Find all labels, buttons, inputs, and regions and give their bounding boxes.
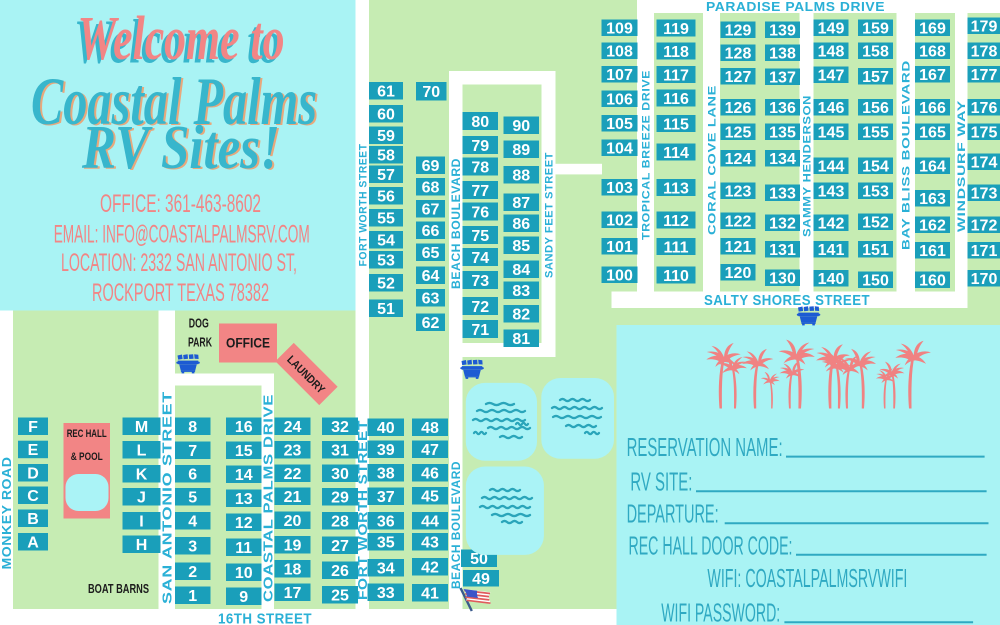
svg-text:108: 108: [606, 44, 633, 61]
svg-text:177: 177: [971, 67, 998, 84]
svg-text:90: 90: [512, 118, 530, 135]
svg-text:25: 25: [331, 588, 349, 605]
svg-text:160: 160: [919, 273, 946, 290]
svg-text:157: 157: [862, 69, 889, 86]
svg-text:49: 49: [472, 571, 490, 588]
svg-text:132: 132: [769, 216, 796, 233]
svg-text:70: 70: [422, 84, 440, 101]
svg-text:115: 115: [663, 116, 689, 133]
svg-text:105: 105: [606, 116, 633, 133]
svg-text:124: 124: [725, 151, 752, 168]
svg-text:ROCKPORT TEXAS 78382: ROCKPORT TEXAS 78382: [92, 279, 269, 307]
svg-text:29: 29: [331, 490, 349, 507]
svg-text:135: 135: [769, 125, 796, 142]
svg-text:149: 149: [818, 21, 845, 38]
svg-text:141: 141: [818, 242, 845, 259]
svg-text:DOG: DOG: [189, 316, 209, 331]
svg-text:42: 42: [421, 560, 439, 577]
svg-text:143: 143: [818, 184, 845, 201]
svg-text:155: 155: [862, 125, 889, 142]
svg-text:31: 31: [331, 443, 349, 460]
svg-text:125: 125: [725, 125, 752, 142]
svg-text:16: 16: [235, 419, 253, 436]
svg-text:109: 109: [606, 21, 633, 38]
svg-text:M: M: [135, 419, 148, 436]
svg-text:112: 112: [663, 213, 689, 230]
svg-text:104: 104: [606, 141, 633, 158]
svg-text:146: 146: [818, 100, 845, 117]
svg-text:62: 62: [422, 315, 440, 332]
svg-text:36: 36: [377, 514, 395, 531]
svg-text:173: 173: [971, 186, 998, 203]
svg-text:CORAL COVE LANE: CORAL COVE LANE: [706, 85, 718, 235]
svg-text:46: 46: [421, 466, 439, 483]
svg-text:176: 176: [971, 100, 998, 117]
svg-text:88: 88: [512, 168, 530, 185]
svg-text:TROPICAL BREEZE DRIVE: TROPICAL BREEZE DRIVE: [640, 70, 652, 240]
svg-text:142: 142: [818, 216, 845, 233]
svg-text:65: 65: [422, 245, 440, 262]
svg-text:64: 64: [422, 268, 440, 285]
svg-text:53: 53: [377, 253, 395, 270]
svg-text:35: 35: [377, 535, 395, 552]
svg-text:55: 55: [377, 211, 395, 228]
svg-text:EMAIL: INFO@COASTALPALMSRV.COM: EMAIL: INFO@COASTALPALMSRV.COM: [54, 221, 310, 249]
svg-text:168: 168: [919, 44, 946, 61]
svg-text:L: L: [137, 443, 147, 460]
svg-text:118: 118: [663, 44, 689, 61]
svg-text:150: 150: [862, 273, 889, 290]
svg-text:129: 129: [725, 23, 752, 40]
svg-text:44: 44: [421, 514, 439, 531]
svg-text:REC HALL: REC HALL: [67, 428, 107, 440]
svg-text:22: 22: [284, 466, 302, 483]
svg-text:138: 138: [769, 46, 796, 63]
svg-text:8: 8: [188, 419, 197, 436]
svg-text:79: 79: [471, 138, 489, 155]
svg-text:F: F: [28, 419, 38, 436]
svg-text:68: 68: [422, 180, 440, 197]
svg-text:133: 133: [769, 186, 796, 203]
svg-text:77: 77: [471, 183, 489, 200]
svg-text:58: 58: [377, 148, 395, 165]
svg-text:171: 171: [971, 243, 998, 260]
svg-text:158: 158: [862, 44, 889, 61]
svg-text:63: 63: [422, 291, 440, 308]
svg-text:163: 163: [919, 191, 946, 208]
svg-text:40: 40: [377, 420, 395, 437]
svg-text:5: 5: [188, 490, 197, 507]
svg-text:10: 10: [235, 565, 253, 582]
svg-text:145: 145: [818, 125, 845, 142]
svg-text:45: 45: [421, 489, 439, 506]
svg-text:C: C: [27, 488, 39, 505]
svg-text:101: 101: [606, 239, 633, 256]
svg-text:SAMMY HENDERSON: SAMMY HENDERSON: [801, 95, 813, 237]
svg-text:74: 74: [471, 250, 489, 267]
svg-text:84: 84: [512, 262, 530, 279]
svg-text:80: 80: [471, 114, 489, 131]
svg-text:126: 126: [725, 100, 752, 117]
svg-text:13: 13: [235, 491, 253, 508]
svg-text:134: 134: [769, 151, 796, 168]
svg-text:REC HALL DOOR CODE:: REC HALL DOOR CODE:: [629, 530, 793, 560]
svg-text:& POOL: & POOL: [71, 451, 103, 463]
svg-text:6: 6: [188, 467, 197, 484]
svg-text:PARK: PARK: [188, 335, 212, 350]
svg-text:178: 178: [971, 44, 998, 61]
svg-text:SALTY SHORES STREET: SALTY SHORES STREET: [704, 292, 870, 309]
svg-text:72: 72: [471, 299, 489, 316]
svg-text:12: 12: [235, 515, 253, 532]
svg-text:137: 137: [769, 70, 796, 87]
svg-text:28: 28: [331, 514, 349, 531]
svg-text:9: 9: [239, 589, 248, 606]
svg-text:E: E: [28, 442, 39, 459]
svg-text:123: 123: [725, 184, 752, 201]
svg-text:66: 66: [422, 223, 440, 240]
svg-text:81: 81: [512, 331, 530, 348]
svg-text:59: 59: [377, 128, 395, 145]
svg-text:174: 174: [971, 155, 998, 172]
svg-text:37: 37: [377, 489, 395, 506]
svg-text:48: 48: [421, 420, 439, 437]
svg-text:LOCATION: 2332 SAN ANTONIO ST,: LOCATION: 2332 SAN ANTONIO ST,: [61, 249, 297, 277]
svg-text:SANDY FEET STREET: SANDY FEET STREET: [543, 152, 555, 278]
svg-text:WIFI PASSWORD:: WIFI PASSWORD:: [661, 598, 780, 625]
svg-text:56: 56: [377, 189, 395, 206]
svg-text:BEACH BOULEVARD: BEACH BOULEVARD: [451, 158, 463, 289]
svg-text:139: 139: [769, 23, 796, 40]
svg-text:75: 75: [471, 228, 489, 245]
svg-text:2: 2: [188, 564, 197, 581]
svg-text:1: 1: [188, 588, 197, 605]
svg-text:FORT WORTH STREET: FORT WORTH STREET: [357, 144, 369, 267]
svg-text:OFFICE: 361-463-8602: OFFICE: 361-463-8602: [100, 190, 261, 218]
svg-text:I: I: [139, 514, 143, 531]
svg-text:K: K: [136, 467, 148, 484]
svg-text:164: 164: [919, 159, 946, 176]
svg-text:BEACH BOULEVARD: BEACH BOULEVARD: [449, 461, 463, 589]
svg-text:113: 113: [663, 180, 689, 197]
svg-text:47: 47: [421, 442, 439, 459]
svg-text:85: 85: [512, 238, 530, 255]
svg-text:DEPARTURE:: DEPARTURE:: [627, 499, 719, 529]
svg-text:RV Sites!: RV Sites!: [81, 114, 280, 182]
svg-text:110: 110: [663, 268, 689, 285]
svg-text:D: D: [27, 466, 39, 483]
svg-text:169: 169: [919, 21, 946, 38]
svg-text:7: 7: [188, 443, 197, 460]
svg-text:54: 54: [377, 233, 395, 250]
svg-text:167: 167: [919, 67, 946, 84]
svg-text:172: 172: [971, 218, 998, 235]
svg-text:106: 106: [606, 92, 633, 109]
svg-text:144: 144: [818, 159, 845, 176]
svg-text:A: A: [27, 535, 39, 552]
svg-text:WINDSURF WAY: WINDSURF WAY: [956, 100, 968, 232]
svg-text:43: 43: [421, 535, 439, 552]
svg-text:FORT WORTH STREET: FORT WORTH STREET: [355, 420, 370, 600]
svg-text:18: 18: [284, 562, 302, 579]
svg-text:51: 51: [377, 301, 395, 318]
svg-text:52: 52: [377, 276, 395, 293]
svg-text:130: 130: [769, 271, 796, 288]
svg-text:61: 61: [377, 84, 395, 101]
svg-text:131: 131: [769, 242, 796, 259]
svg-text:39: 39: [377, 442, 395, 459]
svg-text:121: 121: [725, 239, 752, 256]
svg-text:33: 33: [377, 585, 395, 602]
svg-text:175: 175: [971, 125, 998, 142]
svg-text:114: 114: [663, 145, 689, 162]
svg-text:73: 73: [471, 273, 489, 290]
svg-text:148: 148: [818, 44, 845, 61]
svg-text:87: 87: [512, 195, 530, 212]
svg-text:165: 165: [919, 125, 946, 142]
svg-text:PARADISE PALMS DRIVE: PARADISE PALMS DRIVE: [706, 0, 885, 14]
svg-text:19: 19: [284, 538, 302, 555]
svg-text:153: 153: [862, 184, 889, 201]
svg-text:89: 89: [512, 142, 530, 159]
svg-text:119: 119: [663, 21, 689, 38]
svg-text:152: 152: [862, 215, 889, 232]
svg-text:83: 83: [512, 283, 530, 300]
svg-text:20: 20: [284, 513, 302, 530]
svg-text:COASTAL PALMS DRIVE: COASTAL PALMS DRIVE: [260, 394, 275, 602]
svg-text:67: 67: [422, 202, 440, 219]
svg-text:111: 111: [664, 239, 689, 256]
svg-text:136: 136: [769, 100, 796, 117]
svg-text:60: 60: [377, 107, 395, 124]
svg-text:WIFI: COASTALPALMSRVWIFI: WIFI: COASTALPALMSRVWIFI: [707, 563, 907, 593]
svg-text:103: 103: [606, 180, 633, 197]
svg-text:J: J: [137, 490, 146, 507]
svg-text:32: 32: [331, 419, 349, 436]
svg-text:57: 57: [377, 167, 395, 184]
svg-text:SAN ANTONIO STREET: SAN ANTONIO STREET: [159, 391, 174, 604]
svg-text:162: 162: [919, 218, 946, 235]
svg-text:151: 151: [862, 242, 889, 259]
svg-text:140: 140: [818, 271, 845, 288]
svg-text:41: 41: [421, 586, 439, 603]
svg-text:30: 30: [331, 466, 349, 483]
svg-text:102: 102: [606, 213, 633, 230]
svg-text:120: 120: [725, 265, 752, 282]
svg-text:128: 128: [725, 46, 752, 63]
svg-text:14: 14: [235, 467, 253, 484]
svg-text:H: H: [136, 537, 148, 554]
svg-text:69: 69: [422, 158, 440, 175]
svg-text:76: 76: [471, 204, 489, 221]
svg-text:159: 159: [862, 21, 889, 38]
svg-text:34: 34: [377, 561, 395, 578]
svg-text:147: 147: [818, 68, 845, 85]
svg-text:MONKEY ROAD: MONKEY ROAD: [0, 457, 14, 570]
svg-text:21: 21: [284, 489, 302, 506]
svg-text:166: 166: [919, 100, 946, 117]
svg-text:78: 78: [471, 159, 489, 176]
svg-text:117: 117: [663, 67, 689, 84]
svg-text:127: 127: [725, 69, 752, 86]
svg-text:16TH STREET: 16TH STREET: [218, 610, 312, 625]
svg-text:107: 107: [606, 67, 633, 84]
svg-text:179: 179: [971, 19, 998, 36]
svg-text:4: 4: [188, 514, 197, 531]
svg-text:82: 82: [512, 307, 530, 324]
svg-text:24: 24: [284, 419, 302, 436]
svg-text:RV SITE:: RV SITE:: [630, 467, 692, 497]
svg-text:156: 156: [862, 100, 889, 117]
svg-text:15: 15: [235, 443, 253, 460]
svg-text:3: 3: [188, 539, 197, 556]
svg-text:122: 122: [725, 214, 752, 231]
svg-text:OFFICE: OFFICE: [226, 335, 270, 351]
svg-text:11: 11: [235, 540, 252, 557]
svg-text:BOAT BARNS: BOAT BARNS: [88, 582, 149, 596]
svg-text:BAY BLISS BOULEVARD: BAY BLISS BOULEVARD: [901, 60, 913, 250]
svg-text:71: 71: [471, 322, 489, 339]
svg-text:27: 27: [331, 538, 349, 555]
svg-text:26: 26: [331, 563, 349, 580]
svg-text:17: 17: [284, 585, 302, 602]
svg-text:86: 86: [512, 216, 530, 233]
svg-text:100: 100: [606, 268, 633, 285]
svg-text:RESERVATION NAME:: RESERVATION NAME:: [627, 432, 783, 462]
svg-text:170: 170: [971, 271, 998, 288]
svg-text:38: 38: [377, 466, 395, 483]
svg-text:23: 23: [284, 443, 302, 460]
svg-text:B: B: [27, 511, 39, 528]
svg-text:154: 154: [862, 159, 889, 176]
svg-text:116: 116: [663, 91, 689, 108]
svg-text:161: 161: [919, 243, 946, 260]
